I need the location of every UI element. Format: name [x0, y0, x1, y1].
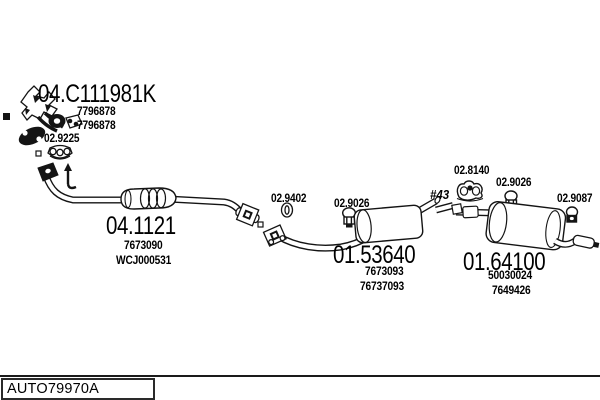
part-code-front-pipe: 04.1121	[106, 214, 176, 239]
marker-square-icon	[258, 222, 263, 227]
divider	[0, 375, 600, 377]
part-ref: 7796878	[77, 105, 116, 117]
part-code-gasket: 02.9225	[44, 134, 79, 146]
part-code-clamp-tail: 02.9087	[557, 194, 592, 206]
catalytic-converter-drawing	[121, 188, 176, 209]
part-code-clamp-rear: 02.9026	[496, 178, 531, 190]
part-ref: 76737093	[360, 280, 404, 292]
part-ref: 7796878	[77, 119, 116, 131]
clamp-icon	[343, 208, 356, 228]
part-code-clamp-front: 02.9026	[334, 199, 369, 211]
front-flange-drawing	[38, 163, 58, 181]
marker-square-icon	[36, 151, 41, 156]
exhaust-diagram-page: 04.C111981K 7796878 7796878 02.9225 04.1…	[0, 0, 600, 400]
pipe-diameter-label: #43	[430, 189, 449, 202]
part-ref: 7649426	[492, 284, 531, 296]
part-ref: 7673090	[124, 239, 163, 251]
drawing-code-plate: AUTO79970A	[1, 378, 155, 400]
gasket-icon	[48, 146, 72, 160]
part-ref: 50030024	[488, 269, 532, 281]
flange-joint-icon	[264, 225, 287, 246]
hook-bolt-icon	[64, 163, 76, 188]
part-code-seal-ring: 02.9402	[271, 194, 306, 206]
part-ref: 7673093	[365, 265, 404, 277]
part-ref: WCJ000531	[116, 254, 171, 266]
pipe-connector-drawing	[452, 204, 462, 214]
pipe-sleeve-drawing	[463, 206, 479, 218]
part-code-hanger: 02.8140	[454, 166, 489, 178]
rubber-hanger-icon	[457, 181, 483, 201]
drawing-code-text: AUTO79970A	[7, 381, 99, 397]
tailpipe-tip-drawing	[572, 235, 600, 250]
clamp-icon	[567, 207, 578, 222]
